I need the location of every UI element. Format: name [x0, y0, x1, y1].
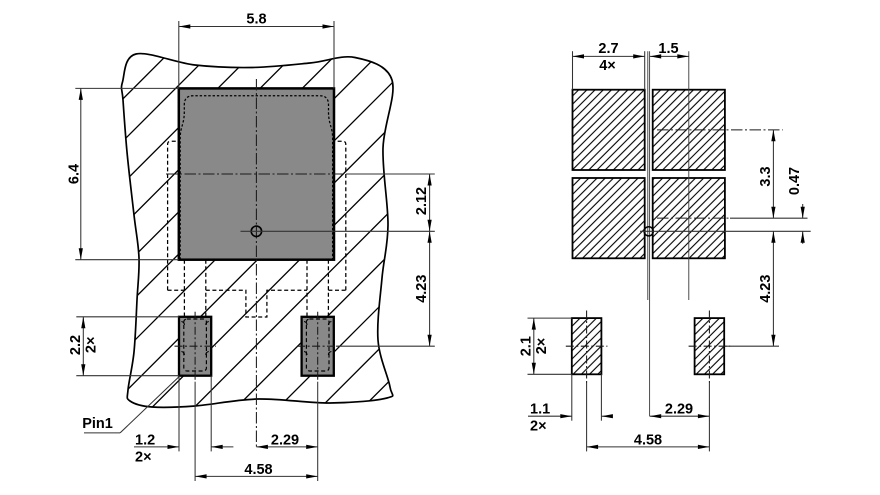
svg-text:0.47: 0.47	[787, 167, 803, 195]
svg-text:2.2: 2.2	[68, 335, 84, 355]
svg-text:2×: 2×	[530, 419, 547, 435]
svg-text:Pin1: Pin1	[82, 416, 113, 432]
svg-text:2.29: 2.29	[271, 433, 299, 449]
svg-text:4.58: 4.58	[244, 462, 272, 478]
svg-text:3.3: 3.3	[758, 166, 774, 186]
svg-text:2×: 2×	[534, 338, 550, 355]
svg-text:2×: 2×	[84, 337, 100, 354]
svg-text:5.8: 5.8	[246, 12, 266, 28]
svg-text:6.4: 6.4	[66, 164, 82, 184]
svg-text:2.1: 2.1	[518, 336, 534, 356]
svg-text:4×: 4×	[599, 58, 616, 74]
svg-text:2×: 2×	[135, 450, 152, 466]
svg-text:2.29: 2.29	[665, 402, 693, 418]
svg-text:1.2: 1.2	[135, 433, 155, 449]
svg-text:4.23: 4.23	[414, 275, 430, 303]
svg-text:4.58: 4.58	[634, 433, 662, 449]
svg-text:4.23: 4.23	[758, 275, 774, 303]
svg-text:1.1: 1.1	[530, 402, 550, 418]
svg-text:1.5: 1.5	[658, 41, 678, 57]
svg-text:2.12: 2.12	[414, 187, 430, 215]
svg-text:2.7: 2.7	[598, 41, 618, 57]
